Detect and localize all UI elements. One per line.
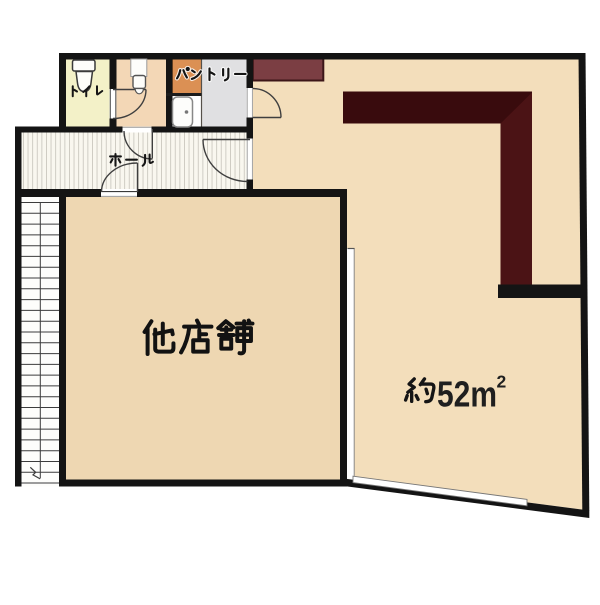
svg-text:2: 2 xyxy=(497,372,507,392)
svg-text:52m: 52m xyxy=(437,374,497,415)
